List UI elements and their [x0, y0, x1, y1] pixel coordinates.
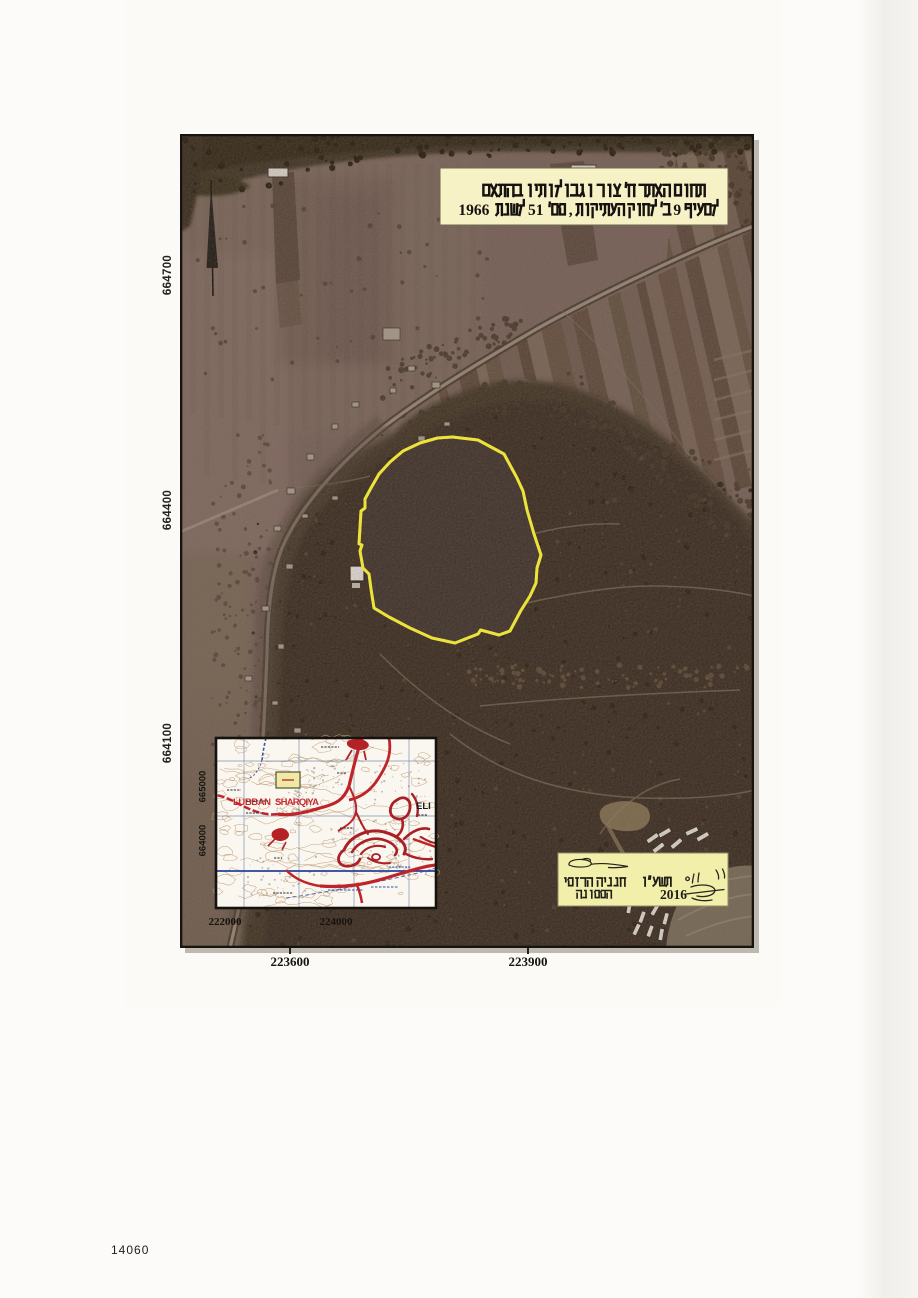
svg-text:1966: 1966 — [458, 202, 489, 219]
svg-text:9: 9 — [673, 202, 681, 219]
svg-text:SHARQIYA: SHARQIYA — [275, 797, 319, 808]
svg-text:2016: 2016 — [660, 887, 687, 902]
svg-text:LUBBAN: LUBBAN — [233, 797, 271, 808]
svg-text:51: 51 — [528, 202, 544, 219]
svg-text:,: , — [569, 202, 573, 219]
svg-text:ELI: ELI — [416, 801, 431, 812]
